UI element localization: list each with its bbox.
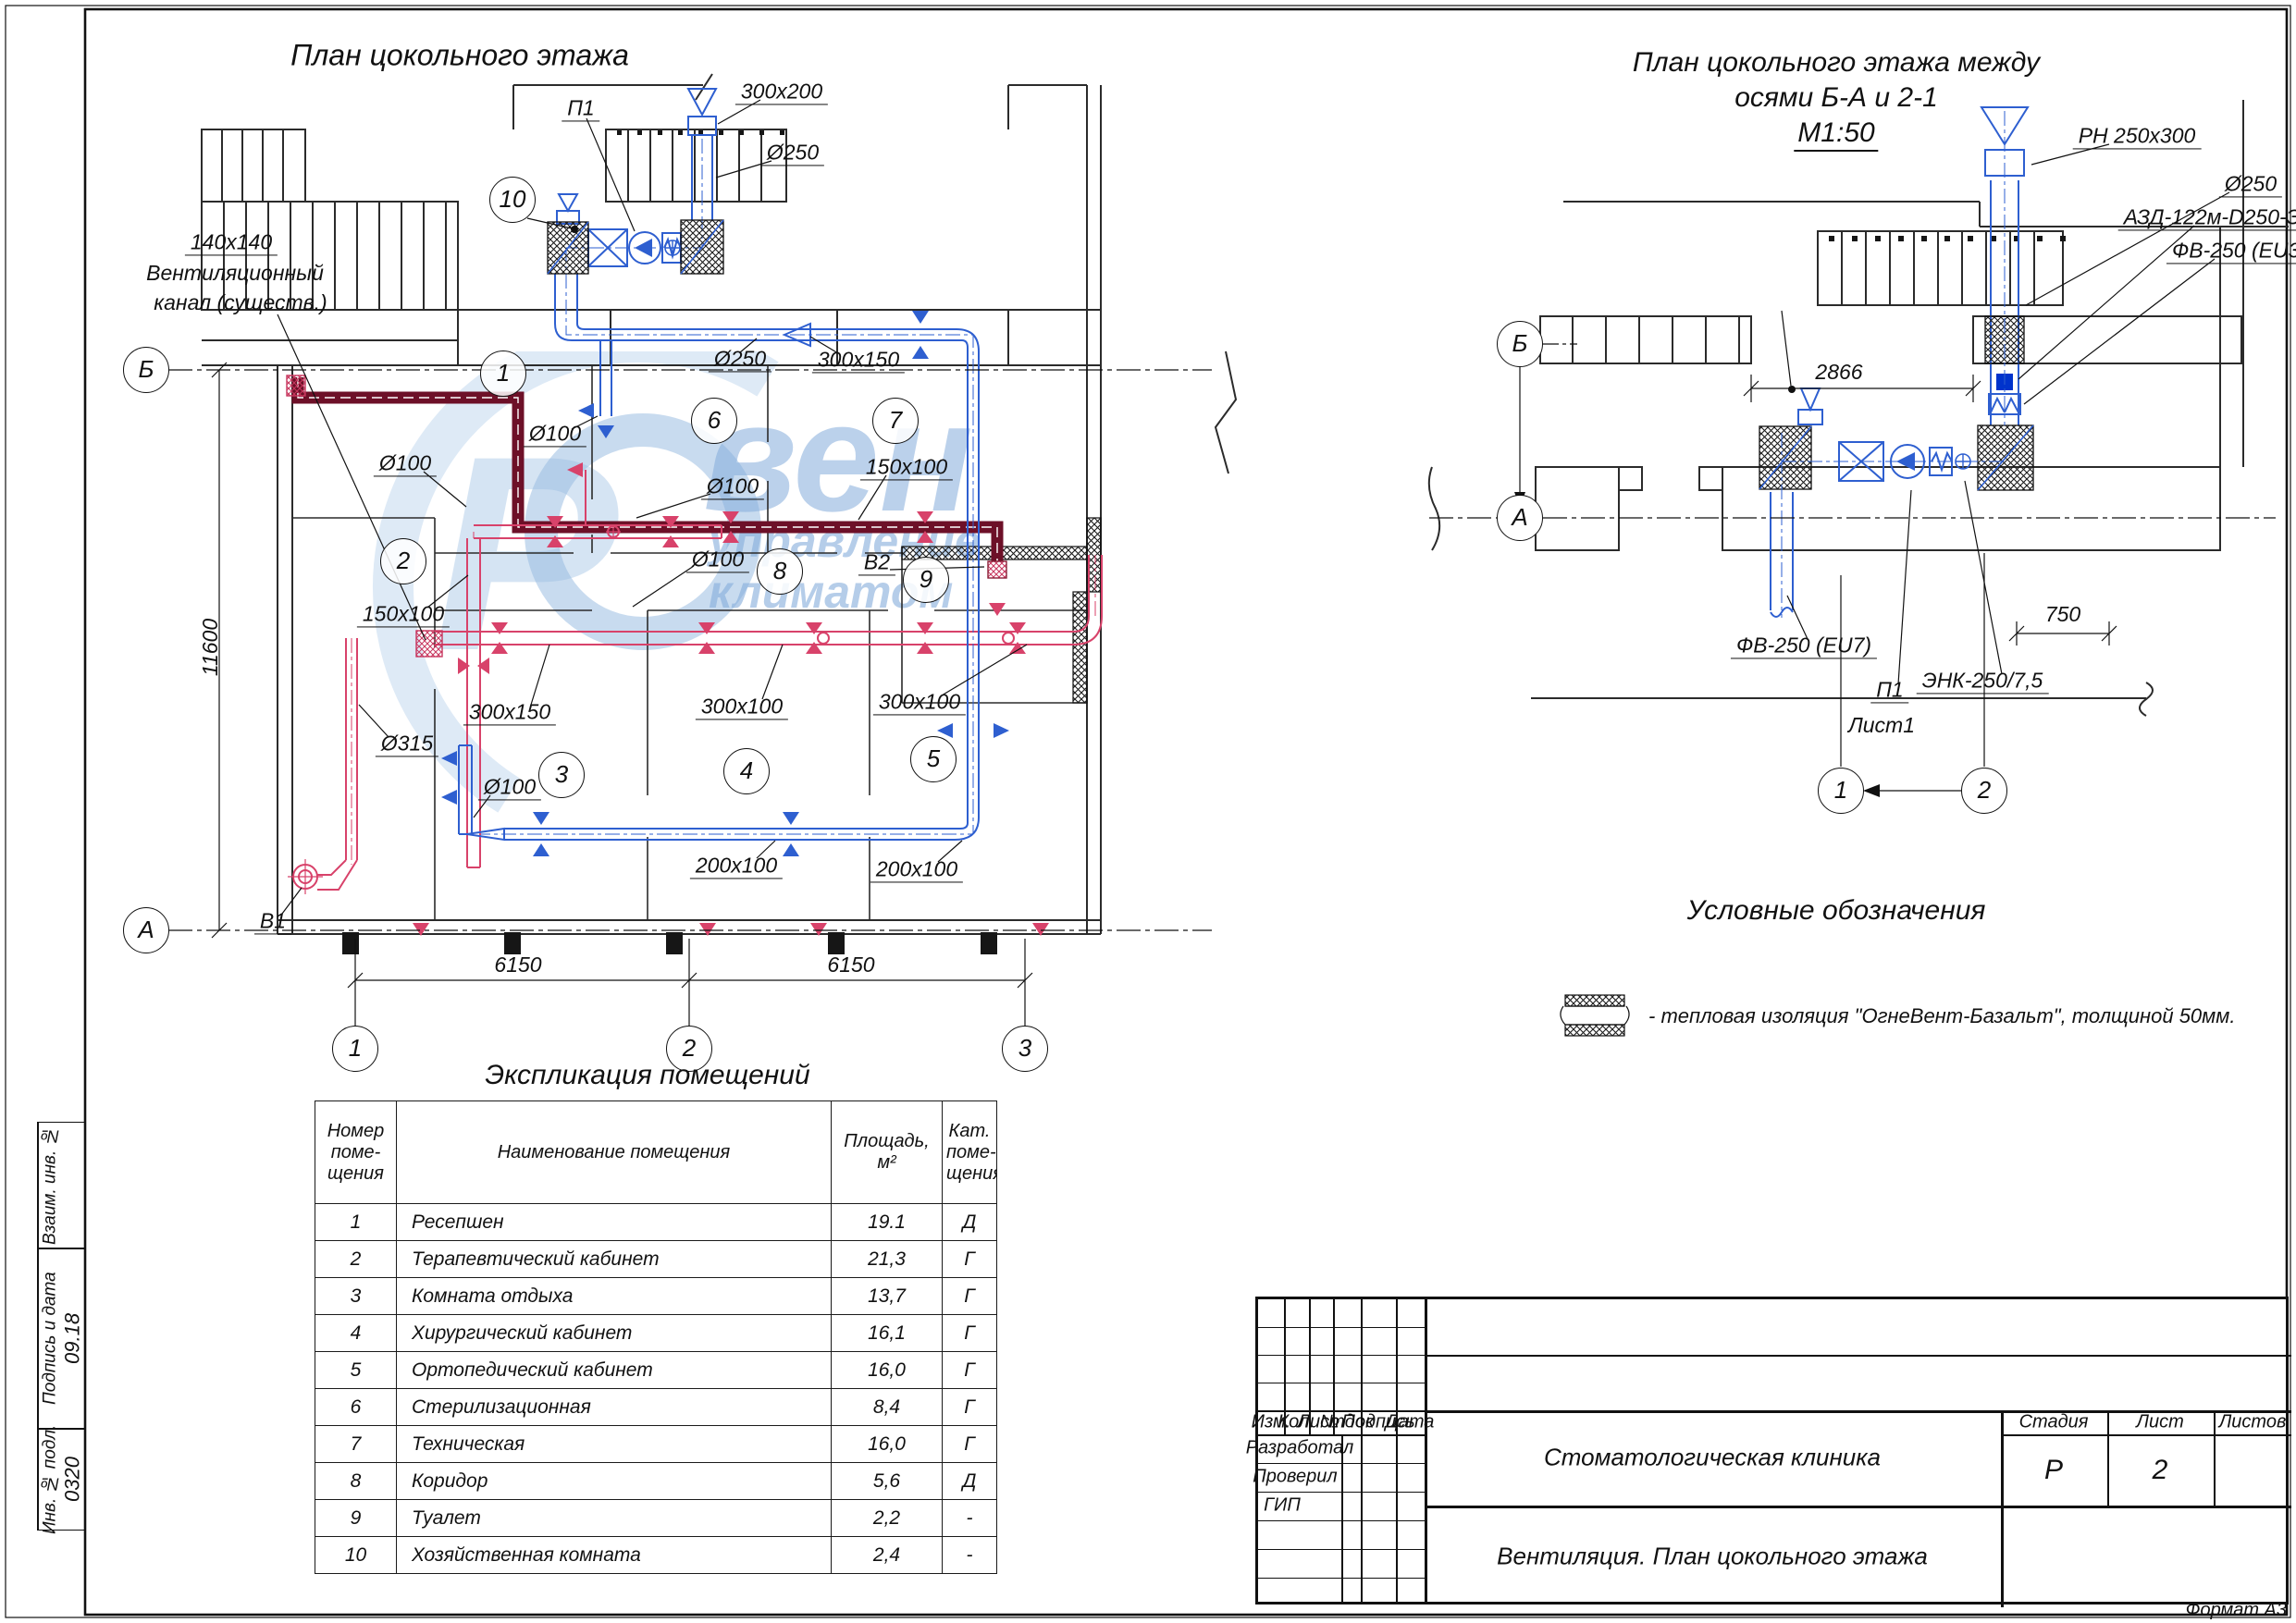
- dimension-label: П1: [562, 96, 599, 121]
- drawing-sheet: Р вен управление климатом: [0, 0, 2296, 1623]
- dimension-label: 300х100: [696, 695, 788, 719]
- dimension-label: 11600: [199, 619, 221, 676]
- explication-cell: 19.1: [832, 1204, 943, 1241]
- explication-cell: Комната отдыха: [397, 1278, 832, 1315]
- explication-cell: 8,4: [832, 1389, 943, 1426]
- explication-cell: Г: [943, 1426, 997, 1463]
- explication-cell: Д: [943, 1204, 997, 1241]
- explication-cell: Техническая: [397, 1426, 832, 1463]
- right-plan-title-2: осями Б-А и 2-1: [1734, 82, 1938, 114]
- tb-role-gip: ГИП: [1264, 1495, 1301, 1517]
- dimension-label: Лист1: [1848, 714, 1915, 736]
- explication-cell: Д: [943, 1463, 997, 1500]
- room-number-bubble: 1: [480, 350, 526, 397]
- dimension-label: 6150: [827, 953, 874, 976]
- dimension-label: Ø250: [709, 347, 772, 372]
- explication-row: 1Ресепшен19.1Д: [315, 1204, 997, 1241]
- supply-insulated-elbows-right: [1759, 316, 2033, 490]
- explication-title: Экспликация помещений: [485, 1060, 809, 1091]
- explication-cell: 4: [315, 1315, 397, 1352]
- explication-cell: 2,2: [832, 1500, 943, 1537]
- dimension-label: 750: [2045, 603, 2080, 625]
- explication-cell: 2,4: [832, 1537, 943, 1574]
- room-number-bubble: 8: [757, 548, 803, 595]
- explication-cell: 16,1: [832, 1315, 943, 1352]
- tb-role-developed: Разработал: [1246, 1438, 1354, 1459]
- right-plan-title-1: План цокольного этажа между: [1633, 47, 2040, 79]
- explication-row: 9Туалет2,2-: [315, 1500, 997, 1537]
- side-stamp-box: Подпись и дата09.18: [37, 1248, 85, 1429]
- title-block: Изм. Кол. Лист № док Подпись Дата Разраб…: [1255, 1297, 2289, 1605]
- explication-row: 5Ортопедический кабинет16,0Г: [315, 1352, 997, 1389]
- dimension-label: 300х200: [735, 80, 828, 105]
- dimension-label: В1: [254, 909, 291, 934]
- left-plan-title: План цокольного этажа: [290, 39, 629, 73]
- dimension-label: 300х100: [873, 690, 966, 715]
- dimension-label: П1: [1870, 678, 1908, 703]
- dimension-label: ЭНК-250/7,5: [1917, 669, 2049, 694]
- side-stamp-value: [61, 1123, 84, 1248]
- dimension-label: 140х140: [185, 230, 278, 255]
- explication-cell: Г: [943, 1389, 997, 1426]
- right-plan-walls: [1429, 100, 2289, 716]
- dimension-label: Ø100: [701, 474, 764, 499]
- dimension-label: 150х100: [860, 455, 953, 480]
- explication-cell: Ортопедический кабинет: [397, 1352, 832, 1389]
- dimension-label: 200х100: [690, 854, 783, 879]
- dimension-label: ФВ-250 (EU3): [2166, 239, 2296, 264]
- axis-bubble: Б: [1497, 321, 1543, 367]
- explication-cell: Г: [943, 1352, 997, 1389]
- room-number-bubble: 3: [538, 752, 585, 798]
- legend-title: Условные обозначения: [1687, 895, 1986, 927]
- explication-row: 7Техническая16,0Г: [315, 1426, 997, 1463]
- side-stamp-value: 09.18: [61, 1249, 84, 1428]
- room-number-bubble: 5: [910, 736, 957, 782]
- explication-cell: 10: [315, 1537, 397, 1574]
- legend-symbol: [1561, 995, 1629, 1036]
- dimension-label: Ø100: [374, 451, 437, 476]
- dimension-label: ФВ-250 (EU7): [1731, 633, 1877, 658]
- right-plan-scale: М1:50: [1794, 117, 1878, 152]
- room-number-bubble: 2: [380, 538, 426, 584]
- dimension-label: 150х100: [357, 602, 450, 627]
- tb-sheets-label: Листов: [2219, 1412, 2287, 1433]
- axis-bubble: 3: [1002, 1026, 1048, 1072]
- explication-cell: 9: [315, 1500, 397, 1537]
- tb-role-checked: Проверил: [1253, 1467, 1337, 1488]
- explication-cell: -: [943, 1537, 997, 1574]
- dimension-label: Ø315: [376, 732, 438, 756]
- explication-cell: Терапевтический кабинет: [397, 1241, 832, 1278]
- axis-bubble: 1: [332, 1026, 378, 1072]
- dimension-label: АЗД-122м-D250-ЭП: [2118, 205, 2296, 230]
- explication-cell: 3: [315, 1278, 397, 1315]
- room-number-bubble: 10: [489, 177, 536, 223]
- tb-stage-value: Р: [2044, 1455, 2063, 1486]
- explication-cell: Г: [943, 1241, 997, 1278]
- explication-cell: 8: [315, 1463, 397, 1500]
- side-stamp-value: 0320: [61, 1430, 84, 1530]
- side-stamp-box: Инв. № подл.0320: [37, 1429, 85, 1531]
- dimension-label: 300х150: [812, 348, 905, 373]
- dimension-label: 2866: [1815, 361, 1862, 383]
- side-stamp-label: Взаим. инв. №: [38, 1123, 62, 1248]
- dimension-label: Ø250: [761, 141, 824, 166]
- dimension-label: Вентиляционный: [146, 262, 324, 284]
- col-room-name: Наименование помещения: [397, 1101, 832, 1204]
- explication-table: Номер поме- щения Наименование помещения…: [315, 1100, 997, 1574]
- explication-cell: -: [943, 1500, 997, 1537]
- dimension-label: РН 250х300: [2073, 124, 2202, 149]
- side-stamp-label: Подпись и дата: [38, 1249, 62, 1428]
- dimension-label: Ø100: [686, 547, 749, 572]
- room-number-bubble: 6: [691, 398, 737, 444]
- explication-cell: 5,6: [832, 1463, 943, 1500]
- explication-row: 8Коридор5,6Д: [315, 1463, 997, 1500]
- legend-item: - тепловая изоляция "ОгнеВент-Базальт", …: [1648, 1004, 2235, 1028]
- explication-cell: 2: [315, 1241, 397, 1278]
- axis-bubble: А: [1497, 495, 1543, 541]
- dimension-label: Ø250: [2219, 172, 2282, 197]
- explication-cell: 21,3: [832, 1241, 943, 1278]
- explication-row: 10Хозяйственная комната2,4-: [315, 1537, 997, 1574]
- explication-cell: Стерилизационная: [397, 1389, 832, 1426]
- right-plan-louver-dots: [1829, 236, 2066, 241]
- explication-cell: 13,7: [832, 1278, 943, 1315]
- col-room-number: Номер поме- щения: [315, 1101, 397, 1204]
- explication-cell: Г: [943, 1315, 997, 1352]
- explication-row: 2Терапевтический кабинет21,3Г: [315, 1241, 997, 1278]
- tb-project-name: Стоматологическая клиника: [1544, 1444, 1881, 1472]
- explication-cell: 7: [315, 1426, 397, 1463]
- dimension-label: В2: [858, 550, 895, 575]
- side-stamp-box: Взаим. инв. №: [37, 1122, 85, 1248]
- tb-col-data: Дата: [1386, 1412, 1435, 1433]
- dimension-label: 300х150: [463, 700, 556, 725]
- axis-bubble: 1: [1818, 768, 1864, 814]
- explication-cell: Хозяйственная комната: [397, 1537, 832, 1574]
- tb-sheet-value: 2: [2153, 1455, 2168, 1486]
- explication-cell: 1: [315, 1204, 397, 1241]
- explication-cell: 16,0: [832, 1352, 943, 1389]
- axis-bubble: А: [123, 907, 169, 953]
- explication-row: 4Хирургический кабинет16,1Г: [315, 1315, 997, 1352]
- explication-cell: 16,0: [832, 1426, 943, 1463]
- explication-row: 3Комната отдыха13,7Г: [315, 1278, 997, 1315]
- explication-cell: 6: [315, 1389, 397, 1426]
- explication-cell: Г: [943, 1278, 997, 1315]
- room-number-bubble: 4: [723, 748, 770, 794]
- room-number-bubble: 9: [903, 557, 949, 603]
- dimension-label: канал (существ.): [154, 291, 327, 314]
- dimension-label: 6150: [494, 953, 541, 976]
- explication-cell: Ресепшен: [397, 1204, 832, 1241]
- room-number-bubble: 7: [872, 398, 919, 444]
- col-room-category: Кат. поме- щения: [943, 1101, 997, 1204]
- explication-cell: 5: [315, 1352, 397, 1389]
- explication-cell: Туалет: [397, 1500, 832, 1537]
- format-note: Формат А3: [2186, 1600, 2287, 1621]
- explication-row: 6Стерилизационная8,4Г: [315, 1389, 997, 1426]
- side-stamp-label: Инв. № подл.: [38, 1430, 62, 1530]
- axis-bubble: Б: [123, 347, 169, 393]
- dimension-label: Ø100: [524, 422, 586, 447]
- col-room-area: Площадь, м²: [832, 1101, 943, 1204]
- tb-stage-label: Стадия: [2019, 1412, 2089, 1433]
- dimension-label: Ø100: [478, 775, 541, 800]
- tb-drawing-name: Вентиляция. План цокольного этажа: [1497, 1543, 1928, 1571]
- dimension-label: 200х100: [870, 857, 963, 882]
- explication-cell: Коридор: [397, 1463, 832, 1500]
- axis-bubble: 2: [1961, 768, 2007, 814]
- explication-cell: Хирургический кабинет: [397, 1315, 832, 1352]
- tb-sheet-label: Лист: [2136, 1412, 2184, 1433]
